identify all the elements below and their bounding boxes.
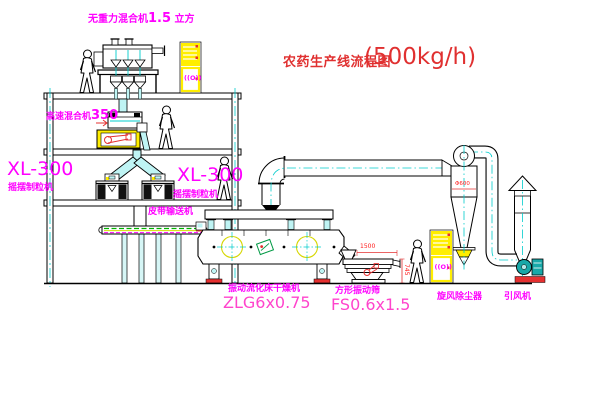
- high-speed-mixer-model: 350: [91, 108, 118, 123]
- granulator-discharge-duct: [134, 206, 146, 227]
- label-granulator-right-name: 摇摆制粒机: [173, 191, 218, 200]
- label-belt-conveyor: 皮带输送机: [148, 208, 193, 217]
- feed-hoppers: [111, 76, 146, 99]
- worker-figure-roof: [80, 50, 96, 93]
- fluid-bed-dryer: [196, 210, 355, 283]
- control-cabinet-upper: [180, 42, 201, 93]
- cabinet-upper-symbol: ((O)): [184, 75, 201, 82]
- worker-figure-ground: [410, 240, 426, 283]
- drawing-title-capacity: (500kg/h): [364, 46, 476, 69]
- exhaust-duct: [258, 156, 458, 216]
- control-cabinet-lower: [430, 230, 453, 283]
- label-granulator-left-model: XL-300: [7, 160, 73, 179]
- gravity-mixer-name: 无重力混合机: [88, 14, 148, 25]
- dim-sieve-length: 1500: [360, 244, 375, 250]
- gravity-mixer-capacity: 1.5: [148, 11, 171, 26]
- label-cyclone: 旋风除尘器: [437, 293, 482, 302]
- label-high-speed-mixer: 高速混合机350: [46, 109, 118, 122]
- induced-draft-fan: [515, 259, 545, 283]
- dim-cyclone-diameter: Φ600: [455, 182, 470, 188]
- cad-flowsheet-canvas: 农药生产线流程图 (500kg/h) 无重力混合机1.5 立方 高速混合机350…: [0, 0, 600, 403]
- label-gravity-mixer: 无重力混合机1.5 立方: [88, 12, 195, 25]
- belt-conveyor: [99, 226, 207, 283]
- high-speed-mixer-name: 高速混合机: [46, 112, 91, 122]
- worker-figure-floor2: [159, 106, 175, 149]
- vibrating-sieve: [341, 250, 400, 283]
- label-dryer-model: ZLG6x0.75: [223, 295, 311, 311]
- label-granulator-right-model: XL-300: [177, 166, 243, 185]
- label-granulator-left-name: 摇摆制粒机: [8, 184, 53, 193]
- swing-granulator-left: [96, 174, 128, 200]
- label-sieve-model: FS0.6x1.5: [331, 297, 410, 313]
- cabinet-lower-symbol: ((O)): [435, 264, 452, 271]
- dim-sieve-height: 745: [403, 264, 409, 275]
- swing-granulator-right: [142, 174, 174, 200]
- gravity-mixer-unit: 立方: [175, 14, 195, 25]
- label-fan: 引风机: [504, 293, 531, 302]
- high-speed-mixer: [96, 99, 150, 150]
